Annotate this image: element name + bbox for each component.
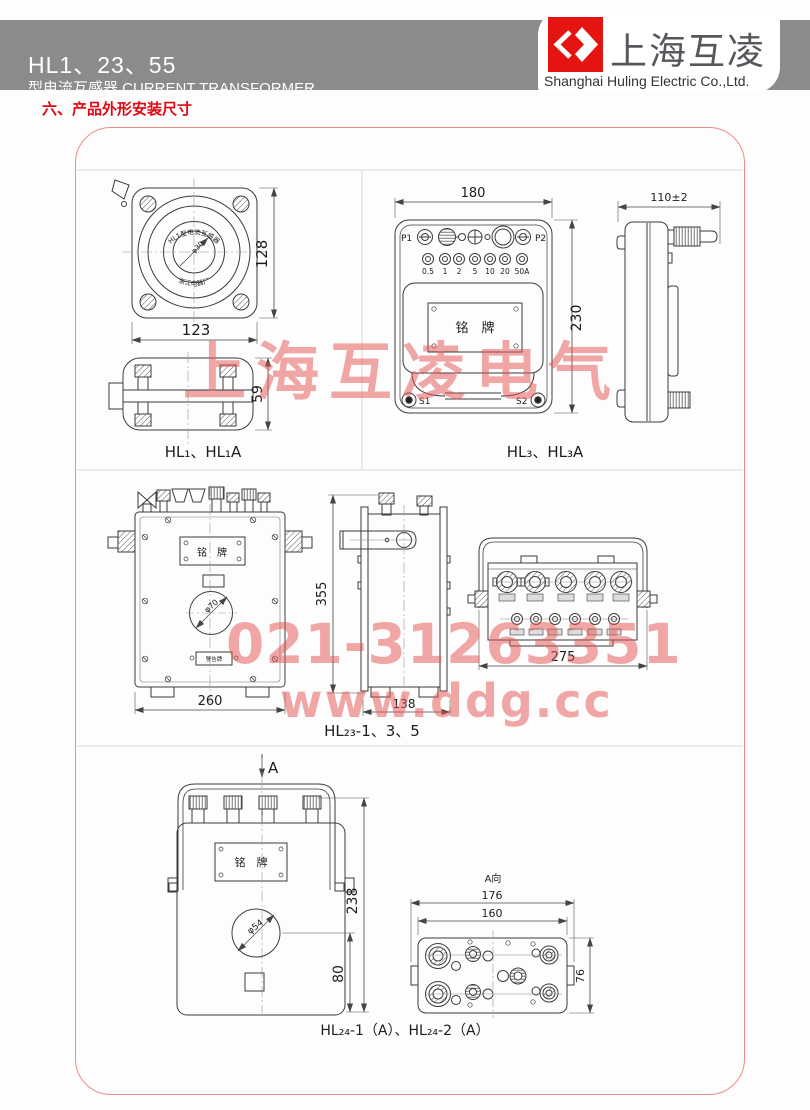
hl3-p2-label: P2	[535, 234, 546, 244]
hl24-height-dim: 238	[345, 888, 361, 915]
svg-text:50A: 50A	[515, 267, 531, 276]
hl24-bore-dim: φ54	[246, 918, 266, 937]
hl23-nameplate-label: 铭 牌	[197, 546, 227, 559]
hl24-view-direction-label: A向	[485, 872, 502, 885]
hl23-side-view-drawing	[328, 493, 450, 716]
hl24-a-view-drawing	[411, 899, 594, 1018]
hl24-caption: HL₂₄-1（A）、HL₂₄-2（A）	[320, 1023, 489, 1039]
svg-text:20: 20	[500, 267, 510, 276]
hl1-side-view-drawing	[109, 352, 272, 444]
hl3-depth-dim: 110±2	[650, 191, 687, 204]
hl23-height-dim: 355	[315, 582, 330, 607]
hl24-side-dim: 76	[574, 969, 587, 983]
hl23-bore-dim: φ70	[203, 598, 221, 615]
hl1-bore-dim: φ30	[190, 240, 205, 255]
hl24-inner-width-dim: 160	[482, 907, 503, 920]
hl3-front-view-drawing	[395, 198, 578, 413]
hl23-width-dim: 260	[198, 694, 223, 709]
hl3-side-view-drawing	[617, 201, 720, 422]
hl24-nameplate-label: 铭 牌	[235, 855, 268, 869]
hl1-height-dim: 128	[253, 240, 271, 269]
hl3-tap-labels: 0.5 1 2 5 10 20 50A	[422, 267, 530, 276]
hl1-depth-dim: 59	[250, 385, 266, 403]
svg-text:0.5: 0.5	[422, 267, 434, 276]
hl3-s1-label: S1	[419, 397, 430, 407]
hl23-warning-label: 警告牌	[206, 655, 223, 663]
hl24-view-arrow-label: A	[268, 759, 279, 777]
hl23-depth-dim: 138	[393, 697, 416, 711]
datasheet-page: HL1、23、55 型电流互感器 CURRENT TRANSFORMER 上海互…	[0, 0, 810, 1110]
svg-text:1: 1	[443, 267, 448, 276]
svg-text:5: 5	[473, 267, 478, 276]
hl1-caption: HL₁、HL₁A	[165, 443, 242, 461]
hl23-front-view-drawing	[108, 485, 312, 714]
hl1-width-dim: 123	[182, 321, 211, 339]
hl24-outer-width-dim: 176	[482, 889, 503, 902]
hl3-p1-label: P1	[401, 234, 412, 244]
hl23-caption: HL₂₃-1、3、5	[324, 722, 420, 740]
svg-text:2: 2	[457, 267, 462, 276]
hl24-lower-dim: 80	[331, 965, 347, 983]
hl3-height-dim: 230	[569, 305, 585, 332]
svg-text:10: 10	[485, 267, 495, 276]
hl23-top-width-dim: 275	[551, 650, 576, 665]
technical-drawings: HL1型电流互感器 浙江电器厂 φ30 123 128 59 HL₁、HL₁A	[0, 0, 810, 1110]
hl3-nameplate-label: 铭 牌	[455, 320, 494, 336]
hl3-caption: HL₃、HL₃A	[507, 443, 584, 461]
hl3-s2-label: S2	[516, 397, 527, 407]
hl3-width-dim: 180	[461, 186, 486, 201]
